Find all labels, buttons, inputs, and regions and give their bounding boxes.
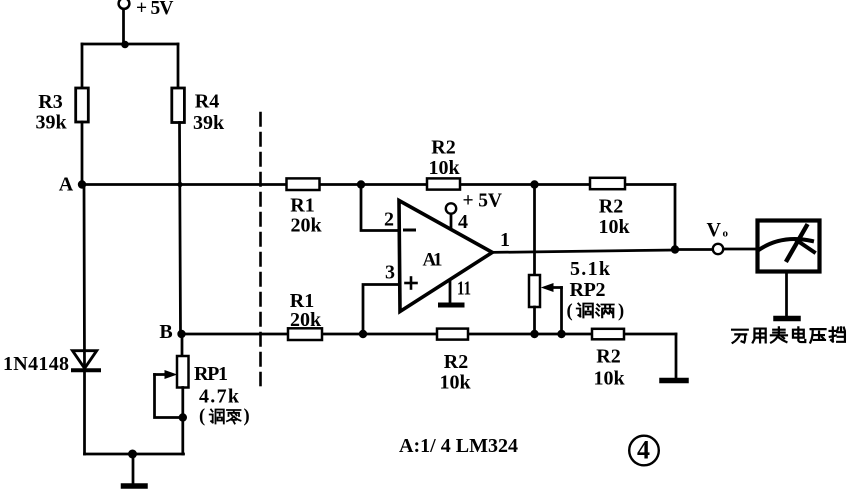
svg-text:5.1k: 5.1k (570, 258, 611, 280)
svg-text:3: 3 (385, 262, 395, 284)
svg-text:R2: R2 (596, 346, 620, 368)
svg-text:+ 5V: + 5V (136, 0, 174, 19)
svg-text:39k: 39k (35, 112, 67, 134)
svg-text:4: 4 (637, 436, 650, 465)
svg-text:RP2: RP2 (570, 279, 606, 301)
svg-text:A1: A1 (423, 250, 443, 271)
svg-text:V: V (707, 219, 722, 241)
svg-text:11: 11 (457, 278, 471, 300)
svg-text:4: 4 (458, 211, 468, 233)
svg-text:4.7k: 4.7k (199, 386, 240, 408)
svg-text:R3: R3 (38, 91, 62, 113)
svg-text:20k: 20k (290, 215, 322, 237)
svg-text:20k: 20k (290, 309, 322, 331)
svg-text:R2: R2 (444, 351, 468, 373)
svg-text:2: 2 (384, 209, 394, 231)
svg-text:10k: 10k (428, 157, 460, 179)
svg-text:10k: 10k (593, 368, 625, 390)
svg-text:A:1/ 4 LM324: A:1/ 4 LM324 (399, 435, 518, 457)
svg-text:A: A (59, 174, 74, 196)
svg-text:1N4148: 1N4148 (3, 353, 69, 375)
svg-text:1: 1 (500, 229, 510, 251)
svg-text:10k: 10k (439, 372, 471, 394)
svg-text:R1: R1 (290, 195, 314, 217)
svg-text:(: ( (199, 407, 205, 427)
svg-text:B: B (159, 321, 172, 343)
svg-text:o: o (723, 228, 729, 240)
svg-text:(: ( (567, 302, 573, 322)
svg-text:RP1: RP1 (194, 363, 228, 385)
svg-text:): ) (244, 407, 250, 427)
svg-text:+ 5V: + 5V (463, 191, 503, 212)
svg-text:R2: R2 (599, 196, 623, 218)
svg-text:R2: R2 (431, 137, 455, 159)
svg-text:R4: R4 (195, 91, 219, 113)
svg-text:39k: 39k (193, 112, 225, 134)
svg-text:10k: 10k (598, 216, 630, 238)
svg-text:): ) (618, 302, 624, 322)
